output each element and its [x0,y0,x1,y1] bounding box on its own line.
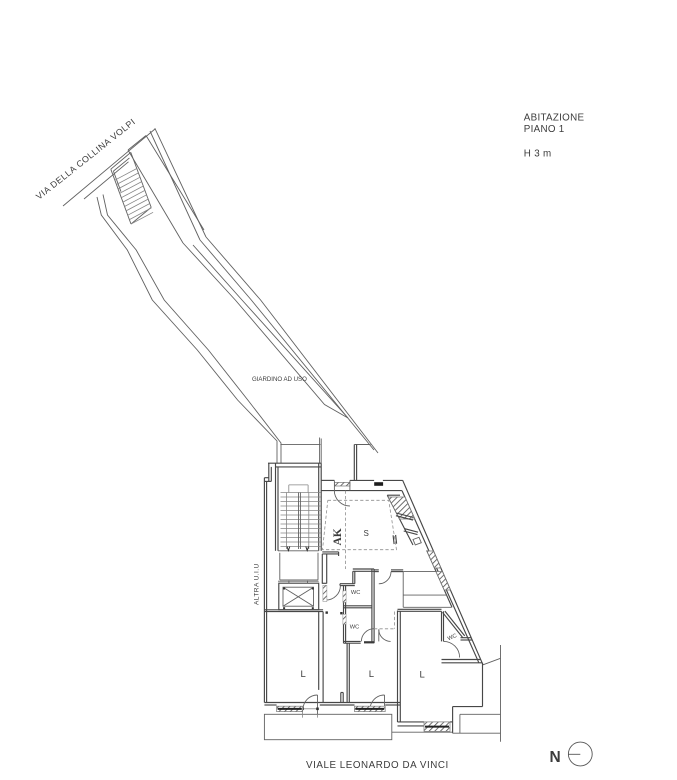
svg-text:WC: WC [351,590,360,596]
svg-text:PIANO 1: PIANO 1 [524,124,565,135]
svg-text:VIALE LEONARDO DA VINCI: VIALE LEONARDO DA VINCI [306,760,449,771]
svg-text:L: L [420,670,425,681]
svg-text:N: N [550,749,561,766]
svg-text:L: L [301,669,306,680]
svg-text:S: S [364,529,369,538]
svg-text:ALTRA U.I.U: ALTRA U.I.U [254,563,261,605]
svg-text:H 3 m: H 3 m [524,148,552,159]
svg-text:L: L [369,669,374,680]
svg-text:VIA DELLA COLLINA VOLPI: VIA DELLA COLLINA VOLPI [34,117,137,202]
svg-text:AK: AK [332,528,344,545]
svg-text:ABITAZIONE: ABITAZIONE [524,113,585,124]
svg-text:GIARDINO AD USO: GIARDINO AD USO [252,376,307,383]
svg-text:WC: WC [447,633,458,642]
svg-text:WC: WC [350,624,359,630]
